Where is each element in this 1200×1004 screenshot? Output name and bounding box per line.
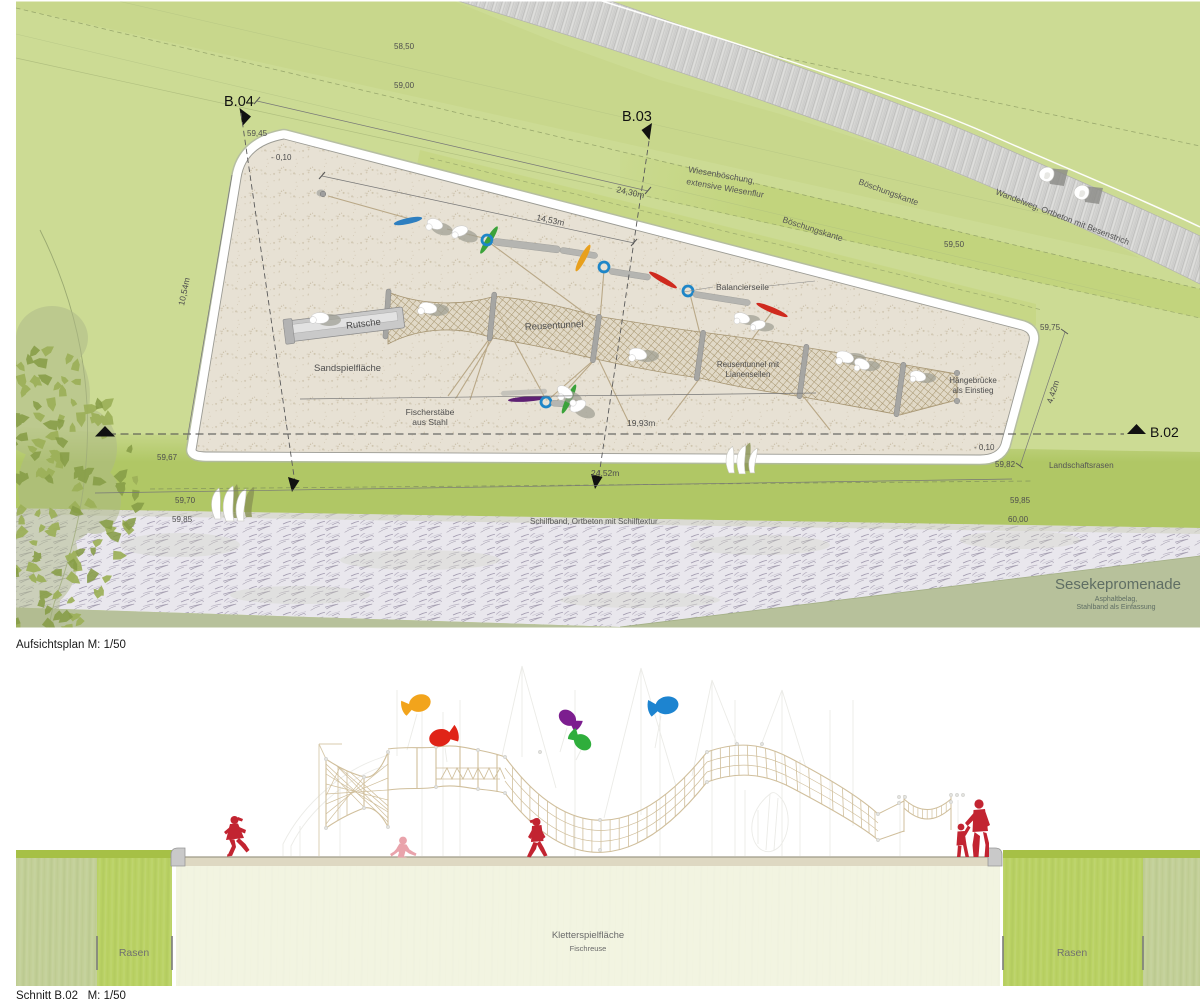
svg-text:Landschaftsrasen: Landschaftsrasen (1049, 461, 1114, 470)
svg-text:Fischreuse: Fischreuse (570, 944, 607, 953)
svg-text:Hängebrücke: Hängebrücke (949, 376, 997, 385)
svg-text:59,45: 59,45 (247, 129, 268, 138)
svg-text:58,50: 58,50 (394, 42, 415, 51)
svg-text:Fischerstäbe: Fischerstäbe (406, 407, 455, 417)
svg-text:59,82: 59,82 (995, 460, 1016, 469)
svg-text:Schnitt B.02 M: 1/50: Schnitt B.02 M: 1/50 (16, 990, 126, 1002)
svg-text:59,75: 59,75 (1040, 323, 1061, 332)
svg-text:Schilfband, Ortbeton mit Schil: Schilfband, Ortbeton mit Schilftextur (530, 517, 658, 526)
svg-text:Lianenseilen: Lianenseilen (726, 370, 771, 379)
svg-text:Balancierseile: Balancierseile (716, 282, 769, 292)
svg-text:Aufsichtsplan M: 1/50: Aufsichtsplan M: 1/50 (16, 639, 126, 651)
svg-text:Asphaltbelag,: Asphaltbelag, (1095, 596, 1137, 603)
svg-text:aus Stahl: aus Stahl (412, 417, 448, 427)
svg-text:Sandspielfläche: Sandspielfläche (314, 363, 381, 374)
svg-text:B.03: B.03 (622, 109, 652, 125)
svg-text:Rasen: Rasen (1057, 947, 1088, 959)
svg-text:59,70: 59,70 (175, 496, 196, 505)
svg-text:59,85: 59,85 (172, 515, 193, 524)
svg-text:59,00: 59,00 (394, 81, 415, 90)
svg-text:Sesekepromenade: Sesekepromenade (1055, 576, 1181, 593)
svg-text:B.04: B.04 (224, 94, 254, 110)
svg-text:- 0,10: - 0,10 (271, 153, 292, 162)
svg-text:Reusentunnel mit: Reusentunnel mit (717, 360, 780, 369)
svg-text:59,85: 59,85 (1010, 496, 1031, 505)
svg-text:24,52m: 24,52m (591, 468, 619, 478)
svg-text:B.02: B.02 (1150, 424, 1179, 440)
svg-text:Kletterspielfläche: Kletterspielfläche (552, 930, 624, 941)
svg-text:19,93m: 19,93m (627, 418, 655, 428)
svg-text:59,67: 59,67 (157, 453, 178, 462)
svg-text:Stahlband als Einfassung: Stahlband als Einfassung (1077, 604, 1156, 611)
svg-text:59,50: 59,50 (944, 240, 965, 249)
svg-text:Rasen: Rasen (119, 947, 150, 959)
svg-text:60,00: 60,00 (1008, 515, 1029, 524)
svg-text:- 0,10: - 0,10 (974, 443, 995, 452)
svg-text:als Einstieg: als Einstieg (953, 386, 994, 395)
